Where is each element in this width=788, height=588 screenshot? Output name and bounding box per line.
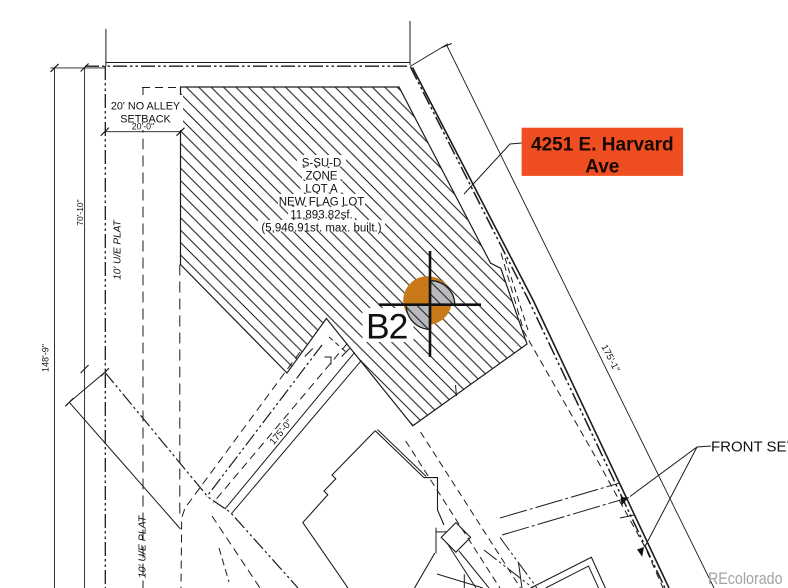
svg-text:4251 E. Harvard: 4251 E. Harvard [531, 135, 674, 156]
svg-text:B2: B2 [366, 307, 407, 347]
svg-text:Ave: Ave [585, 157, 619, 178]
svg-text:LOT A: LOT A [305, 184, 338, 196]
svg-text:11,893.82sf.: 11,893.82sf. [290, 210, 352, 222]
svg-text:NEW FLAG LOT: NEW FLAG LOT [279, 197, 365, 209]
svg-text:10' U/E PLAT: 10' U/E PLAT [113, 219, 124, 279]
svg-text:148'-9": 148'-9" [41, 344, 51, 372]
svg-text:ZONE: ZONE [306, 171, 338, 183]
svg-text:(5,946.91st. max. built.): (5,946.91st. max. built.) [261, 223, 381, 235]
svg-text:FRONT SETBACK: FRONT SETBACK [711, 439, 788, 456]
svg-text:10' U/E PLAT: 10' U/E PLAT [137, 514, 149, 578]
svg-text:20' NO ALLEY: 20' NO ALLEY [111, 101, 180, 113]
svg-text:20'-0": 20'-0" [132, 121, 154, 131]
svg-text:70'-10": 70'-10" [75, 199, 85, 225]
svg-text:S-SU-D: S-SU-D [302, 158, 342, 170]
svg-text:REcolorado: REcolorado [708, 570, 783, 588]
